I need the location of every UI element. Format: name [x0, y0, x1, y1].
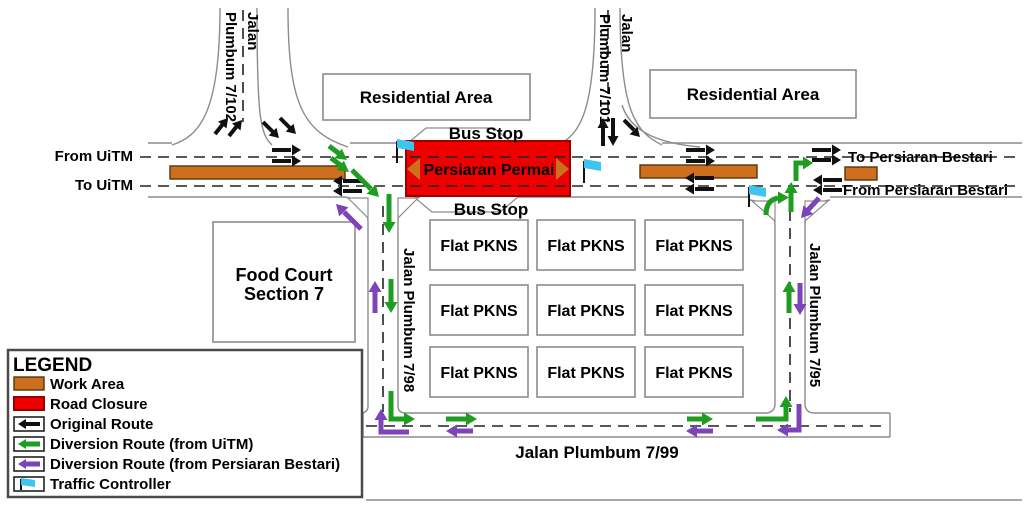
- svg-text:Flat PKNS: Flat PKNS: [440, 365, 518, 382]
- road-label-7-98: Jalan Plumbum 7/98: [400, 248, 417, 392]
- road-label-7-99: Jalan Plumbum 7/99: [515, 443, 678, 462]
- svg-text:Flat PKNS: Flat PKNS: [655, 303, 733, 320]
- svg-text:Flat PKNS: Flat PKNS: [655, 238, 733, 255]
- svg-text:Flat PKNS: Flat PKNS: [547, 303, 625, 320]
- svg-text:Flat PKNS: Flat PKNS: [547, 238, 625, 255]
- food-court-label-line2: Section 7: [244, 284, 324, 304]
- legend-road-closure-label: Road Closure: [50, 396, 148, 413]
- diversion-uitm-arrow: [446, 413, 477, 426]
- legend-work-area-label: Work Area: [50, 376, 125, 393]
- legend-original-route-swatch: [14, 417, 44, 431]
- food-court-label-line1: Food Court: [236, 265, 333, 285]
- original-route-arrow: [685, 184, 714, 195]
- building-flat-pkns: Flat PKNS: [430, 220, 528, 270]
- building-flat-pkns: Flat PKNS: [537, 220, 635, 270]
- original-route-arrow: [813, 175, 842, 186]
- from-uitm-label: From UiTM: [55, 148, 133, 165]
- road-label-7-101-line2: Plumbum 7/101: [596, 14, 613, 124]
- traffic-diversion-map: Residential Area Residential Area Food C…: [0, 0, 1024, 506]
- legend-traffic-controller-swatch: [14, 477, 44, 491]
- legend-original-route-label: Original Route: [50, 416, 153, 433]
- building-flat-pkns: Flat PKNS: [430, 347, 528, 397]
- legend-work-area-swatch: [14, 377, 44, 390]
- road-jalan-plumbum-7-99: [363, 413, 890, 437]
- svg-text:Flat PKNS: Flat PKNS: [655, 365, 733, 382]
- diversion-uitm-arrow: [796, 157, 813, 182]
- building-flat-pkns-grid: Flat PKNS Flat PKNS Flat PKNS Flat PKNS …: [430, 220, 743, 397]
- diversion-bestari-arrow: [369, 281, 382, 313]
- bus-stop-north-label: Bus Stop: [449, 124, 524, 143]
- bus-stop-south-label: Bus Stop: [454, 200, 529, 219]
- building-food-court: Food Court Section 7: [213, 222, 355, 342]
- diversion-uitm-arrow: [687, 413, 713, 426]
- original-route-arrow: [333, 186, 362, 197]
- legend-traffic-controller-label: Traffic Controller: [50, 476, 171, 493]
- traffic-controller-flag: [584, 159, 601, 183]
- building-flat-pkns: Flat PKNS: [537, 347, 635, 397]
- to-persiaran-bestari-label: To Persiaran Bestari: [848, 149, 993, 166]
- road-label-7-101-line1: Jalan: [618, 14, 635, 52]
- legend: LEGEND Work Area Road Closure Original R…: [8, 350, 362, 497]
- building-residential-left: Residential Area: [323, 74, 530, 120]
- legend-diversion-uitm-label: Diversion Route (from UiTM): [50, 436, 253, 453]
- building-flat-pkns: Flat PKNS: [645, 285, 743, 335]
- diversion-uitm-arrow: [783, 281, 796, 313]
- diversion-uitm-arrow: [391, 391, 415, 426]
- building-flat-pkns: Flat PKNS: [645, 347, 743, 397]
- closed-road-label: Persiaran Permai: [424, 162, 555, 179]
- road-label-7-102-line2: Plumbum 7/102: [222, 12, 239, 122]
- building-flat-pkns: Flat PKNS: [430, 285, 528, 335]
- road-label-7-102-line1: Jalan: [244, 12, 261, 50]
- original-route-arrow: [812, 145, 841, 156]
- original-route-arrow: [280, 118, 296, 134]
- work-area-west: [170, 166, 345, 179]
- legend-diversion-bestari-label: Diversion Route (from Persiaran Bestari): [50, 456, 340, 473]
- original-route-arrow: [229, 120, 242, 136]
- legend-diversion-uitm-swatch: [14, 437, 44, 451]
- diversion-uitm-arrow: [383, 194, 396, 233]
- from-persiaran-bestari-label: From Persiaran Bestari: [843, 182, 1008, 199]
- building-residential-right: Residential Area: [650, 70, 856, 118]
- original-route-arrow: [272, 145, 301, 156]
- residential-right-label: Residential Area: [687, 85, 820, 104]
- legend-road-closure-swatch: [14, 397, 44, 410]
- svg-text:Flat PKNS: Flat PKNS: [440, 238, 518, 255]
- work-area-far-east: [845, 167, 877, 180]
- building-flat-pkns: Flat PKNS: [645, 220, 743, 270]
- residential-left-label: Residential Area: [360, 88, 493, 107]
- building-flat-pkns: Flat PKNS: [537, 285, 635, 335]
- original-route-arrow: [215, 118, 228, 134]
- road-label-7-95: Jalan Plumbum 7/95: [806, 243, 823, 387]
- legend-diversion-bestari-swatch: [14, 457, 44, 471]
- svg-text:Flat PKNS: Flat PKNS: [547, 365, 625, 382]
- diversion-uitm-arrow: [385, 279, 398, 313]
- original-route-arrow: [812, 155, 841, 166]
- svg-text:Flat PKNS: Flat PKNS: [440, 303, 518, 320]
- to-uitm-label: To UiTM: [75, 177, 133, 194]
- legend-title: LEGEND: [13, 355, 92, 376]
